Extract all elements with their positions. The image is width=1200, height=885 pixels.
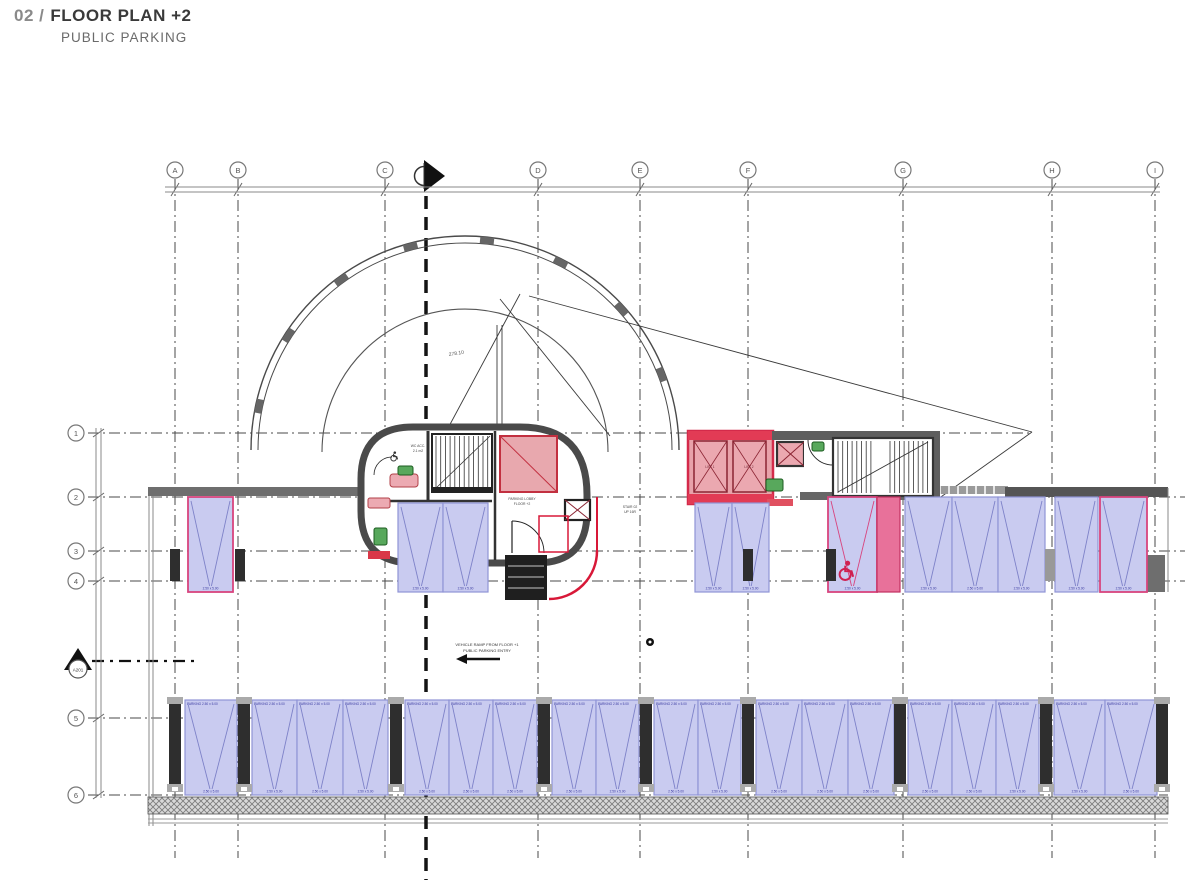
- grid-column-label: I: [1154, 166, 1156, 175]
- stair-note-2: UP 16R: [624, 510, 636, 514]
- wall-right-stub: [1147, 555, 1165, 592]
- grid-column-label: B: [235, 166, 240, 175]
- elevator-block: LIFT 1 LIFT 2: [688, 431, 773, 504]
- space-label: 2.50 x 5.00: [267, 790, 283, 794]
- parking-space: 2.50 x 5.00PARKING 2.50 x 5.00: [493, 700, 537, 795]
- ramp-note-2: PUBLIC PARKING ENTRY: [463, 648, 511, 653]
- grid-column-label: A: [172, 166, 177, 175]
- space-label: 2.50 x 5.00: [771, 790, 787, 794]
- space-label: 2.50 x 5.00: [1014, 587, 1030, 591]
- parking-space: 2.50 x 5.00PARKING 2.50 x 5.00: [952, 700, 996, 795]
- space-label-top: PARKING 2.50 x 5.00: [1107, 702, 1138, 706]
- lobby-note-2: FLOOR +2: [514, 502, 531, 506]
- parking-space: 2.50 x 5.00PARKING 2.50 x 5.00: [185, 700, 237, 795]
- grid-row-label: 1: [74, 429, 78, 438]
- space-label-top: PARKING 2.50 x 5.00: [758, 702, 789, 706]
- space-label: 2.50 x 5.00: [706, 587, 722, 591]
- column-lower: [640, 704, 652, 784]
- space-label: 2.50 x 5.00: [610, 790, 626, 794]
- arc-ticks: [254, 236, 667, 413]
- space-label: 2.50 x 5.00: [458, 587, 474, 591]
- space-label-top: PARKING 2.50 x 5.00: [1056, 702, 1087, 706]
- lift2-label: LIFT 2: [744, 465, 753, 469]
- core-stair: [432, 434, 492, 492]
- column-lower: [390, 704, 402, 784]
- grid-column-label: E: [637, 166, 642, 175]
- space-label-top: PARKING 2.50 x 5.00: [554, 702, 585, 706]
- wall-upper-right: [1005, 487, 1168, 497]
- space-label-top: PARKING 2.50 x 5.00: [998, 702, 1029, 706]
- stair-note: STAIR 02: [623, 505, 638, 509]
- grid-row-label: 4: [74, 577, 78, 586]
- grid-row-label: 6: [74, 791, 78, 800]
- parking-space: 2.50 x 5.00PARKING 2.50 x 5.00: [297, 700, 343, 795]
- space-label-top: PARKING 2.50 x 5.00: [254, 702, 285, 706]
- space-label: 2.50 x 5.00: [358, 790, 374, 794]
- parking-space: 2.50 x 5.00PARKING 2.50 x 5.00: [908, 700, 952, 795]
- section-tag: A201: [73, 668, 84, 673]
- space-label: 2.50 x 5.00: [312, 790, 328, 794]
- space-label-top: PARKING 2.50 x 5.00: [700, 702, 731, 706]
- drawing-subtitle: PUBLIC PARKING: [61, 30, 191, 45]
- wall-upper-left: [148, 487, 368, 496]
- column-lower: [169, 704, 181, 784]
- floor-plan-page: 02 /FLOOR PLAN +2 PUBLIC PARKING ABCDEFG…: [0, 0, 1200, 885]
- grid-row-label: 5: [74, 714, 78, 723]
- parking-space: 2.50 x 5.00PARKING 2.50 x 5.00: [848, 700, 894, 795]
- parking-space: 2.50 x 5.00: [1055, 497, 1098, 592]
- parking-space: 2.50 x 5.00PARKING 2.50 x 5.00: [654, 700, 698, 795]
- parking-space: 2.50 x 5.00: [998, 497, 1045, 592]
- space-label-top: PARKING 2.50 x 5.00: [954, 702, 985, 706]
- arc-dimension: 278.10: [448, 350, 464, 358]
- arc-tick: [480, 236, 495, 244]
- column-lower: [894, 704, 906, 784]
- column-lower: [538, 704, 550, 784]
- ramp-note: VEHICLE RAMP FROM FLOOR +1: [455, 642, 519, 647]
- parking-space: 2.50 x 5.00: [1100, 497, 1147, 592]
- space-label: 2.50 x 5.00: [863, 790, 879, 794]
- column-mid: [1045, 549, 1055, 581]
- parking-space: 2.50 x 5.00PARKING 2.50 x 5.00: [698, 700, 741, 795]
- parking-space: 2.50 x 5.00PARKING 2.50 x 5.00: [449, 700, 493, 795]
- space-label: 2.50 x 5.00: [1116, 587, 1132, 591]
- space-label: 2.50 x 5.00: [203, 790, 219, 794]
- grid-column-label: F: [746, 166, 751, 175]
- space-label-top: PARKING 2.50 x 5.00: [345, 702, 376, 706]
- parking-space: 2.50 x 5.00PARKING 2.50 x 5.00: [1105, 700, 1157, 795]
- space-label: 2.50 x 5.00: [203, 587, 219, 591]
- wall-window-band: [933, 486, 1008, 494]
- space-label-top: PARKING 2.50 x 5.00: [187, 702, 218, 706]
- parking-space: 2.50 x 5.00: [695, 503, 732, 592]
- grid-column-label: H: [1049, 166, 1054, 175]
- space-label-top: PARKING 2.50 x 5.00: [451, 702, 482, 706]
- lobby-note: PARKING LOBBY: [508, 497, 536, 501]
- column-mid: [826, 549, 836, 581]
- space-label: 2.50 x 5.00: [668, 790, 684, 794]
- space-label-top: PARKING 2.50 x 5.00: [804, 702, 835, 706]
- lobby-wc: [804, 440, 833, 492]
- wc-note-2: 2.1 m2: [413, 449, 423, 453]
- column-lower: [742, 704, 754, 784]
- drawing-number: 02 /: [14, 6, 44, 25]
- space-label: 2.50 x 5.00: [966, 790, 982, 794]
- parking-space: 2.50 x 5.00PARKING 2.50 x 5.00: [552, 700, 596, 795]
- space-label: 2.50 x 5.00: [419, 790, 435, 794]
- space-label: 2.50 x 5.00: [743, 587, 759, 591]
- space-label-top: PARKING 2.50 x 5.00: [850, 702, 881, 706]
- parking-space: 2.50 x 5.00: [443, 503, 488, 592]
- drawing-title-block: 02 /FLOOR PLAN +2 PUBLIC PARKING: [14, 6, 191, 45]
- space-label: 2.50 x 5.00: [566, 790, 582, 794]
- parking-space: 2.50 x 5.00PARKING 2.50 x 5.00: [405, 700, 449, 795]
- wall-bottom-hatched: [148, 797, 1168, 814]
- space-label: 2.50 x 5.00: [507, 790, 523, 794]
- grid-column-label: D: [535, 166, 541, 175]
- grid-row-label: 2: [74, 493, 78, 502]
- space-label: 2.50 x 5.00: [413, 587, 429, 591]
- grid-row-label: 3: [74, 547, 78, 556]
- grid-column-label: G: [900, 166, 906, 175]
- space-label-top: PARKING 2.50 x 5.00: [299, 702, 330, 706]
- parking-space: 2.50 x 5.00: [952, 497, 998, 592]
- column-mid: [743, 549, 753, 581]
- space-label: 2.50 x 5.00: [1010, 790, 1026, 794]
- space-label-top: PARKING 2.50 x 5.00: [656, 702, 687, 706]
- parking-space: 2.50 x 5.00: [905, 497, 952, 592]
- space-label: 2.50 x 5.00: [845, 587, 861, 591]
- space-label-top: PARKING 2.50 x 5.00: [407, 702, 438, 706]
- space-label: 2.50 x 5.00: [463, 790, 479, 794]
- parking-space: 2.50 x 5.00PARKING 2.50 x 5.00: [596, 700, 639, 795]
- drawing-title: FLOOR PLAN +2: [50, 6, 191, 25]
- space-label-top: PARKING 2.50 x 5.00: [495, 702, 526, 706]
- space-label: 2.50 x 5.00: [1069, 587, 1085, 591]
- space-label: 2.50 x 5.00: [967, 587, 983, 591]
- stair-down-block: [505, 555, 547, 600]
- arc-tick: [254, 399, 264, 414]
- parking-space: 2.50 x 5.00PARKING 2.50 x 5.00: [802, 700, 848, 795]
- lift1-label: LIFT 1: [705, 465, 714, 469]
- space-label-top: PARKING 2.50 x 5.00: [598, 702, 629, 706]
- column-lower: [1156, 704, 1168, 784]
- grid-column-label: C: [382, 166, 388, 175]
- parking-space: 2.50 x 5.00PARKING 2.50 x 5.00: [996, 700, 1039, 795]
- parking-space: 2.50 x 5.00: [398, 503, 443, 592]
- floor-plan-drawing: ABCDEFGHI123456A201 278.10: [0, 0, 1200, 885]
- space-label: 2.50 x 5.00: [921, 587, 937, 591]
- parking-space: 2.50 x 5.00PARKING 2.50 x 5.00: [1054, 700, 1105, 795]
- column-mid: [170, 549, 180, 581]
- wc-note: WC ACC.: [411, 444, 426, 448]
- space-label: 2.50 x 5.00: [1072, 790, 1088, 794]
- parking-space: 2.50 x 5.00PARKING 2.50 x 5.00: [252, 700, 297, 795]
- parking-space: 2.50 x 5.00PARKING 2.50 x 5.00: [343, 700, 388, 795]
- space-label: 2.50 x 5.00: [817, 790, 833, 794]
- column-lower: [238, 704, 250, 784]
- ramp-arrow: [456, 654, 500, 664]
- space-label-top: PARKING 2.50 x 5.00: [910, 702, 941, 706]
- column-lower: [1040, 704, 1052, 784]
- space-label: 2.50 x 5.00: [922, 790, 938, 794]
- right-stair: [833, 438, 933, 496]
- parking-spaces: 2.50 x 5.002.50 x 5.002.50 x 5.002.50 x …: [185, 497, 1157, 795]
- parking-space: 2.50 x 5.00: [188, 497, 233, 592]
- column-mid: [235, 549, 245, 581]
- space-label: 2.50 x 5.00: [1123, 790, 1139, 794]
- parking-hatch-stripe: [877, 497, 900, 592]
- space-label: 2.50 x 5.00: [712, 790, 728, 794]
- parking-space: 2.50 x 5.00PARKING 2.50 x 5.00: [756, 700, 802, 795]
